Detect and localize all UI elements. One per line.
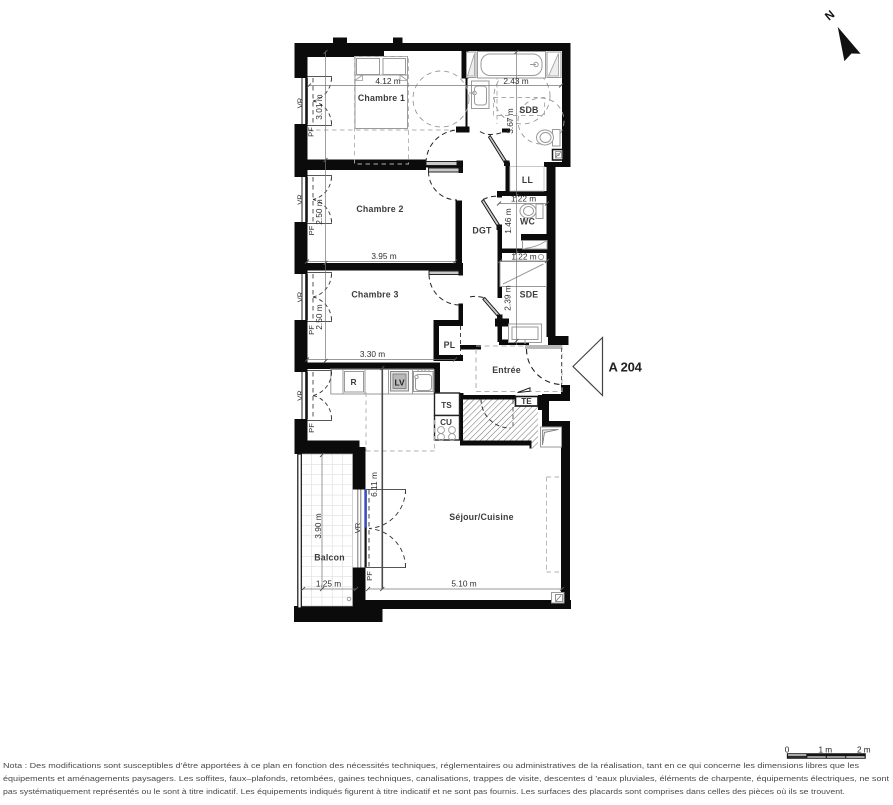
- svg-text:CU: CU: [440, 418, 452, 427]
- svg-text:équipements et aménagements pa: équipements et aménagements paysagers. L…: [3, 774, 890, 783]
- svg-text:LL: LL: [522, 175, 534, 185]
- svg-text:3.30 m: 3.30 m: [360, 349, 385, 359]
- svg-text:2.43 m: 2.43 m: [503, 76, 528, 86]
- svg-text:VR: VR: [296, 291, 305, 302]
- svg-text:Chambre 3: Chambre 3: [351, 290, 398, 300]
- svg-text:Nota : Des modifications sont: Nota : Des modifications sont susceptibl…: [3, 761, 859, 770]
- svg-text:TS: TS: [441, 401, 452, 410]
- svg-text:1.22 m: 1.22 m: [511, 252, 536, 262]
- svg-text:4.12 m: 4.12 m: [375, 76, 400, 86]
- svg-text:PF: PF: [365, 571, 374, 581]
- svg-text:LV: LV: [394, 378, 404, 388]
- svg-text:Séjour/Cuisine: Séjour/Cuisine: [449, 512, 513, 522]
- svg-text:5.10 m: 5.10 m: [451, 579, 476, 589]
- svg-text:1.22 m: 1.22 m: [511, 194, 536, 204]
- svg-text:VR: VR: [296, 390, 305, 401]
- svg-text:R: R: [350, 377, 356, 387]
- svg-text:0: 0: [785, 745, 790, 754]
- svg-text:TE: TE: [521, 397, 532, 406]
- svg-text:SDB: SDB: [519, 105, 538, 115]
- svg-text:VR: VR: [296, 194, 305, 205]
- svg-text:PL: PL: [444, 340, 456, 350]
- svg-text:A 204: A 204: [609, 360, 643, 375]
- svg-text:SDE: SDE: [520, 290, 539, 300]
- svg-text:2.50 m: 2.50 m: [314, 199, 324, 224]
- svg-text:P: P: [556, 154, 560, 160]
- svg-text:Entrée: Entrée: [492, 365, 521, 375]
- svg-text:3.95 m: 3.95 m: [371, 251, 396, 261]
- svg-text:2.39 m: 2.39 m: [503, 285, 513, 310]
- svg-text:1 m: 1 m: [818, 745, 832, 754]
- svg-text:Balcon: Balcon: [314, 553, 345, 563]
- svg-text:WC: WC: [520, 217, 536, 227]
- svg-text:Chambre 1: Chambre 1: [358, 93, 405, 103]
- svg-text:3.01 m: 3.01 m: [314, 94, 324, 119]
- svg-text:PF: PF: [307, 423, 316, 433]
- svg-text:3.67 m: 3.67 m: [505, 108, 515, 133]
- svg-text:pas systématiquement représent: pas systématiquement représentés ou le s…: [3, 787, 845, 796]
- svg-text:PF: PF: [307, 325, 316, 335]
- svg-text:Chambre 2: Chambre 2: [356, 204, 403, 214]
- svg-text:PF: PF: [307, 127, 316, 137]
- svg-text:6.11 m: 6.11 m: [369, 472, 379, 497]
- svg-text:1.46 m: 1.46 m: [503, 208, 513, 233]
- svg-text:VR: VR: [353, 522, 362, 533]
- svg-text:1.25 m: 1.25 m: [316, 579, 341, 589]
- svg-text:3.90 m: 3.90 m: [313, 513, 323, 538]
- svg-text:VR: VR: [296, 97, 305, 108]
- svg-text:PF: PF: [307, 225, 316, 235]
- svg-text:2 m: 2 m: [857, 745, 871, 754]
- svg-text:DGT: DGT: [472, 226, 492, 236]
